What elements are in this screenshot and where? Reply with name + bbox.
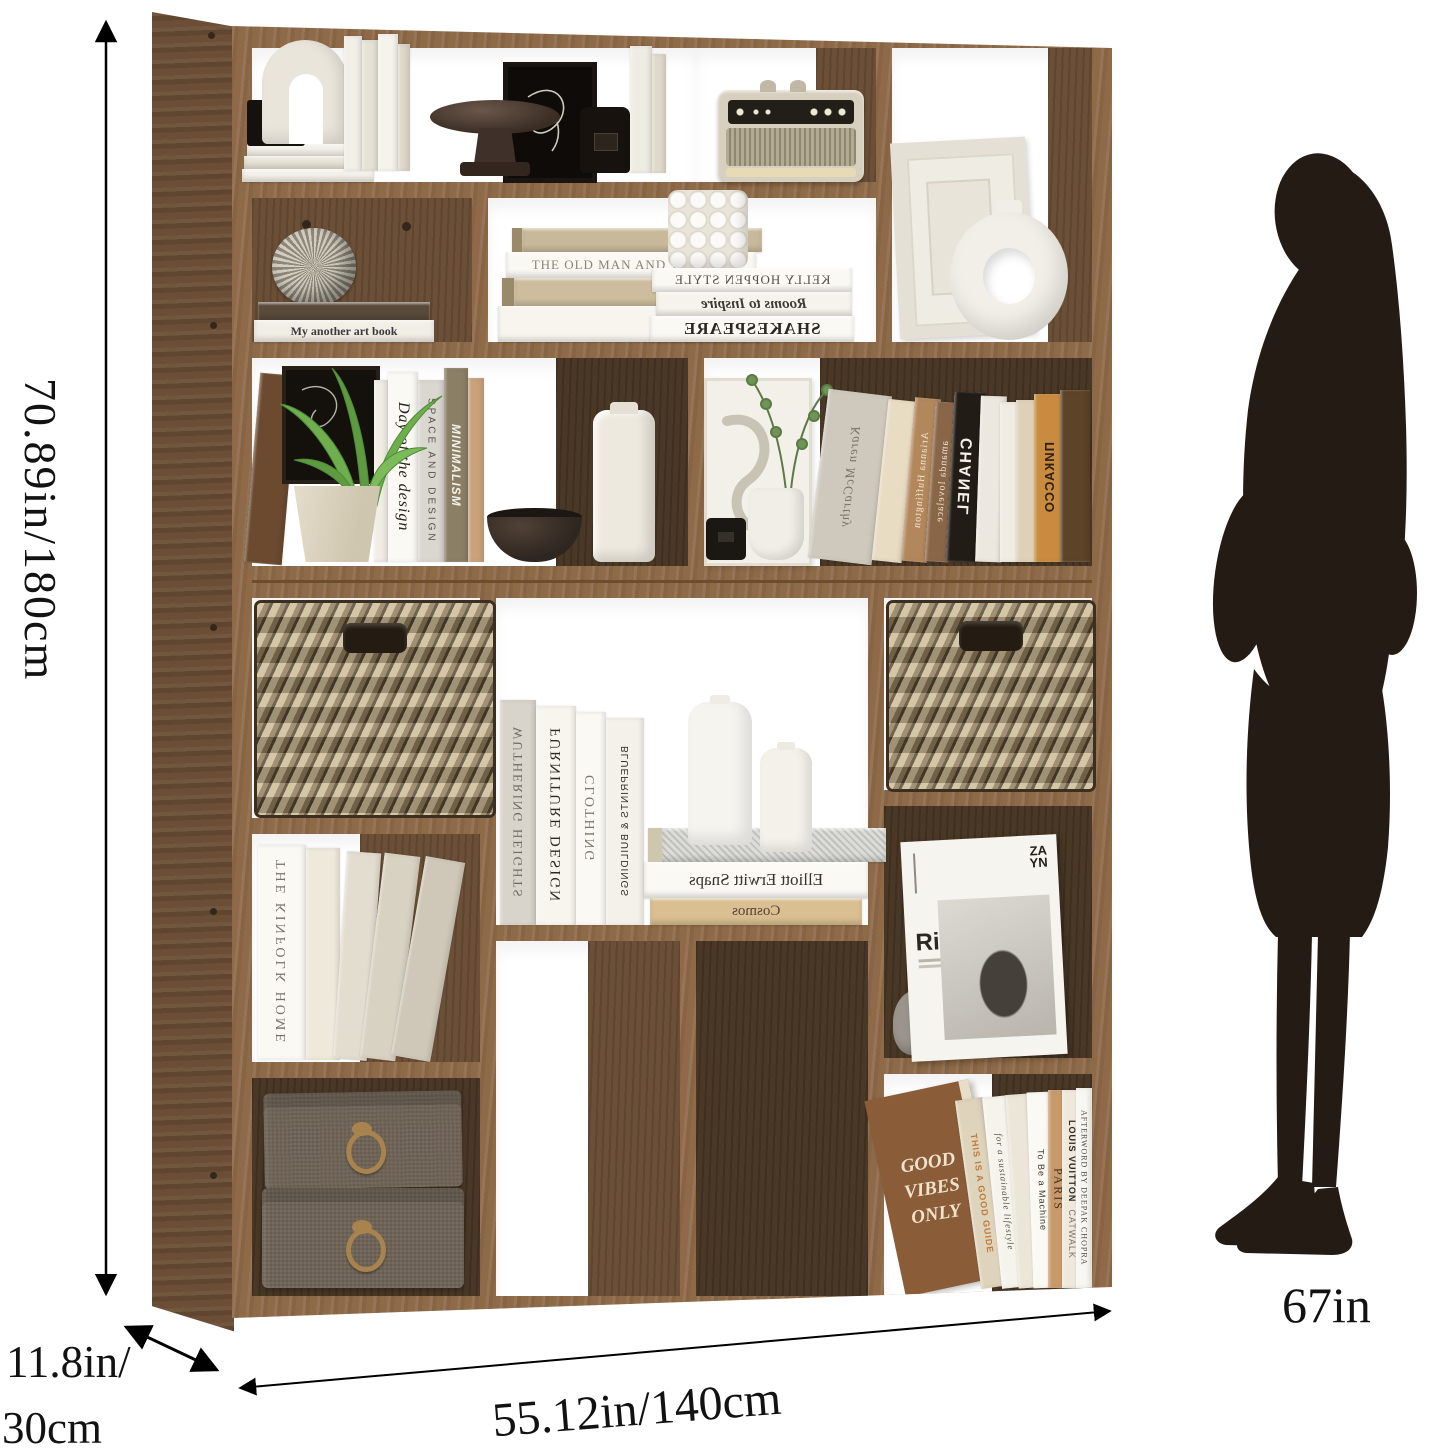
- width-dimension-line: [240, 1311, 1110, 1388]
- product-dimension-image: My another art book THE OLD MAN AND THE …: [0, 0, 1445, 1450]
- depth-dimension-label-line2: 30cm: [2, 1402, 102, 1450]
- depth-dimension-label-line1: 11.8in/: [6, 1336, 131, 1388]
- height-dimension-label: 70.89in/180cm: [14, 378, 67, 681]
- dimension-lines: [0, 0, 1445, 1450]
- person-height-label: 67in: [1282, 1276, 1371, 1334]
- depth-dimension-line: [126, 1327, 217, 1370]
